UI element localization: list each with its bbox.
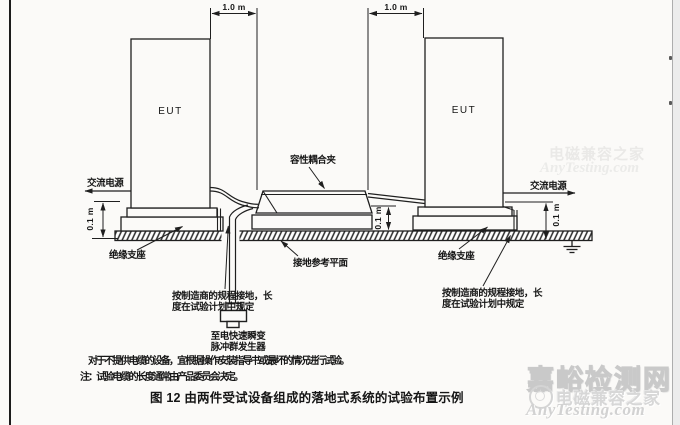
insulating-support-right-label: 绝缘支座 [438,251,474,262]
note-line1: 对于不提供电缆的设备，宜根据操作/安装指导书或最坏的情况进行试验。 [88,356,348,368]
dimension-height-right-label: 0.1 m [551,197,561,233]
dimension-height-left-label: 0.1 m [85,201,95,237]
coupling-clamp-shape [252,191,372,229]
generator-label-line1: 至电快速瞬变 [205,331,271,342]
eut-left-box [131,39,210,208]
insulating-support-right-shape [413,207,517,230]
dimension-height-middle-label: 0.1 m [373,200,383,236]
grounding-note-right-line2: 度在试验计划中规定 [442,299,542,310]
dimension-top-right [368,8,424,190]
eut-right-label: EUT [425,105,503,117]
page-left-rule [9,0,11,425]
coax-to-generator [230,205,254,303]
insulating-support-left-label: 绝缘支座 [109,250,145,261]
leader-ground-strap-right [483,236,511,287]
leader-coupling-clamp [309,167,325,189]
dimension-top-right-label: 1.0 m [368,2,424,12]
watermark-logo-icon [529,385,553,409]
grounding-note-right-line1: 按制造商的规程接地，长 [442,288,542,299]
grounding-note-left: 按制造商的规程接地，长 度在试验计划中规定 [172,291,272,313]
ac-power-left-label: 交流电源 [87,178,123,189]
insulating-support-left-shape [121,208,223,231]
grounding-note-left-line2: 度在试验计划中规定 [172,302,272,313]
scan-speck [669,101,672,105]
ac-power-right-label: 交流电源 [530,181,566,192]
leader-ground-plane [281,241,298,256]
figure-caption: 图 12 由两件受试设备组成的落地式系统的试验布置示例 [150,391,464,406]
eut-right-box [425,38,503,207]
generator-label: 至电快速瞬变 脉冲群发生器 [205,331,271,353]
coupling-clamp-label: 容性耦合夹 [290,155,336,166]
page-right-margin [672,0,680,425]
generator-label-line2: 脉冲群发生器 [205,342,271,353]
dimension-top-left-label: 1.0 m [211,2,257,12]
earth-ground-icon [564,241,581,253]
grounding-note-left-line1: 按制造商的规程接地，长 [172,291,272,302]
ground-reference-plane-label: 接地参考平面 [293,258,348,269]
scan-speck [669,56,672,60]
note-line2: 注：试验电缆的长度通常由产品委员会决定。 [80,372,242,384]
scanned-document-page: 电磁兼容之家 AnyTesting.com [0,0,680,425]
dimension-top-left [211,8,258,190]
cable-left-to-clamp [210,188,259,208]
eut-left-label: EUT [131,106,210,118]
grounding-note-right: 按制造商的规程接地，长 度在试验计划中规定 [442,288,542,310]
